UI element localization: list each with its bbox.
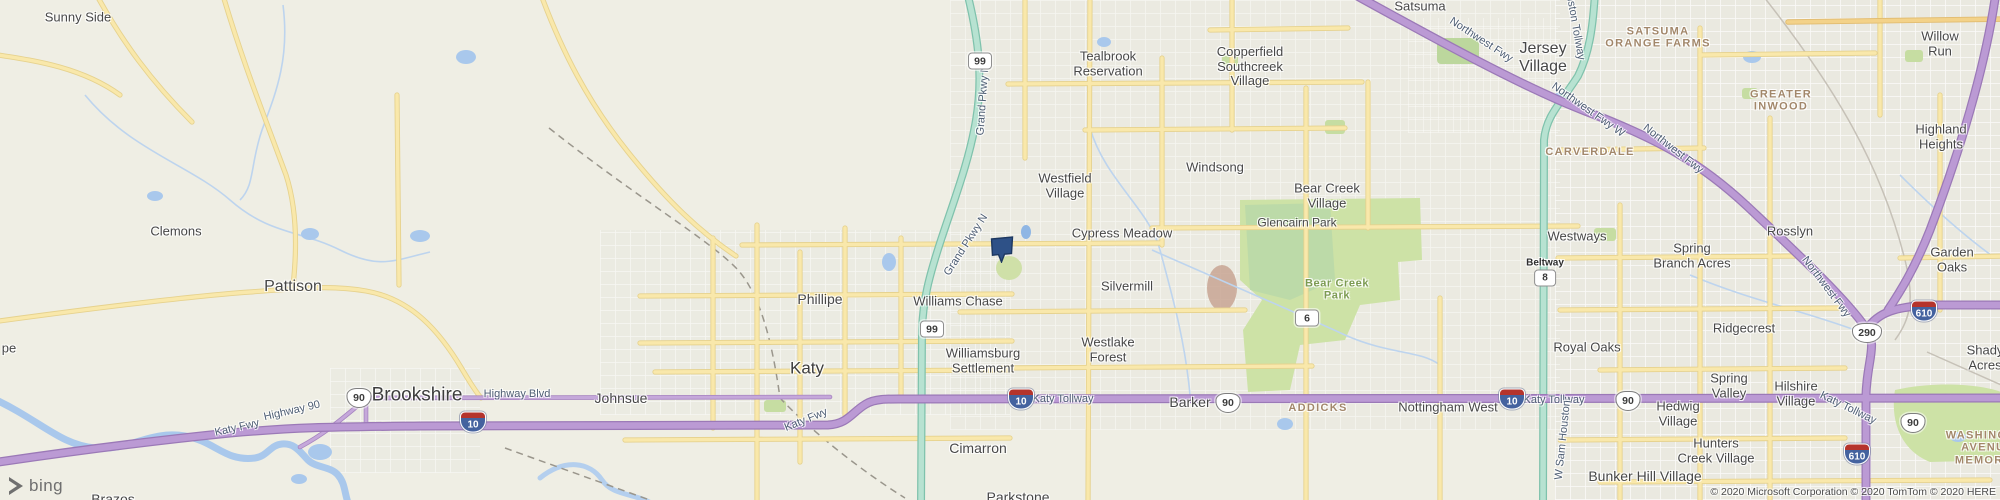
cimarron-label: Cimarron [949, 441, 1007, 457]
bing-logo[interactable]: bing [9, 476, 63, 496]
cypress-meadow-label: Cypress Meadow [1072, 227, 1172, 242]
clemons-label: Clemons [150, 225, 201, 240]
sunny-side-label: Sunny Side [45, 11, 112, 26]
garden-oaks-label: Garden Oaks [1928, 245, 1976, 274]
katy-tollway-2-label: Katy Tollway [1524, 394, 1585, 406]
bunker-hill-village-label: Bunker Hill Village [1588, 469, 1701, 485]
williamsburg-settlement-label: Williamsburg Settlement [946, 346, 1020, 375]
westfield-village-label: Westfield Village [1038, 171, 1091, 200]
copperfield-southcreek-village-label: Copperfield Southcreek Village [1217, 45, 1284, 89]
bear-creek-park-label: Bear Creek Park [1305, 278, 1369, 303]
sh-beltway-8-number: 8 [1534, 270, 1556, 287]
carverdale-label: CARVERDALE [1545, 146, 1634, 158]
greater-inwood-label: GREATER INWOOD [1750, 89, 1812, 114]
windsong-label: Windsong [1186, 161, 1244, 176]
westways-label: Westways [1548, 230, 1607, 245]
ridgecrest-label: Ridgecrest [1713, 322, 1775, 337]
pe-partial-label: pe [2, 342, 16, 357]
glencairn-park-label: Glencairn Park [1257, 216, 1336, 229]
highland-heights-label: Highland Heights [1915, 122, 1966, 151]
johnsue-label: Johnsue [595, 391, 648, 407]
shady-acres-label: Shady Acres [1967, 343, 2000, 372]
brookshire-label: Brookshire [372, 384, 463, 405]
hunters-creek-village-label: Hunters Creek Village [1677, 436, 1754, 465]
map-copyright: © 2020 Microsoft Corporation © 2020 TomT… [1710, 486, 1996, 498]
sh-10-east-shield: 10 [1499, 389, 1525, 410]
rosslyn-label: Rosslyn [1767, 225, 1813, 240]
silvermill-label: Silvermill [1101, 280, 1153, 295]
westlake-forest-label: Westlake Forest [1081, 335, 1134, 364]
sh-610-south-shield: 610 [1844, 444, 1870, 465]
location-marker[interactable] [990, 236, 1014, 263]
spring-branch-acres-label: Spring Branch Acres [1653, 241, 1730, 270]
spring-valley-label: Spring Valley [1710, 371, 1748, 400]
bear-creek-village-label: Bear Creek Village [1294, 181, 1360, 210]
pattison-label: Pattison [264, 278, 322, 296]
sh-99-north-shield: 99 [968, 53, 992, 70]
willow-run-label: Willow Run [1910, 29, 1970, 58]
washington-avenue-memorial-label: WASHINGTON AVENUE-MEMORIAL [1946, 430, 2000, 467]
phillipe-label: Phillipe [797, 292, 842, 308]
satsuma-orange-farms-label: SATSUMA ORANGE FARMS [1605, 26, 1710, 51]
addicks-label: ADDICKS [1288, 402, 1347, 414]
jersey-village-label: Jersey Village [1519, 40, 1567, 76]
williams-chase-label: Williams Chase [913, 295, 1003, 310]
katy-tollway-1-label: Katy Tollway [1033, 393, 1094, 405]
sh-beltway-8-caption: Beltway [1526, 258, 1564, 269]
bing-chevron-icon [9, 477, 23, 495]
royal-oaks-label: Royal Oaks [1553, 341, 1620, 356]
sh-beltway-8-shield: Beltway8 [1526, 258, 1564, 287]
map-canvas[interactable]: bing © 2020 Microsoft Corporation © 2020… [0, 0, 2000, 500]
tealbrook-reservation-label: Tealbrook Reservation [1073, 49, 1142, 78]
hedwig-village-label: Hedwig Village [1656, 399, 1699, 428]
barker-label: Barker [1169, 395, 1210, 411]
highway-blvd-label: Highway Blvd [484, 388, 551, 400]
katy-label: Katy [790, 358, 824, 377]
sh-610-north-shield: 610 [1911, 301, 1937, 322]
sh-10-brookshire-shield: 10 [460, 412, 486, 433]
sh-99-south-shield: 99 [920, 321, 944, 338]
satsuma-label: Satsuma [1394, 0, 1445, 14]
sh-10-katy-shield: 10 [1008, 389, 1034, 410]
nottingham-west-label: Nottingham West [1398, 401, 1497, 416]
sh-6-shield: 6 [1295, 310, 1319, 327]
parkstone-label: Parkstone [986, 490, 1049, 500]
brazos-label: Brazos [91, 492, 135, 500]
hilshire-village-label: Hilshire Village [1774, 379, 1817, 408]
bing-logo-text: bing [29, 476, 63, 496]
